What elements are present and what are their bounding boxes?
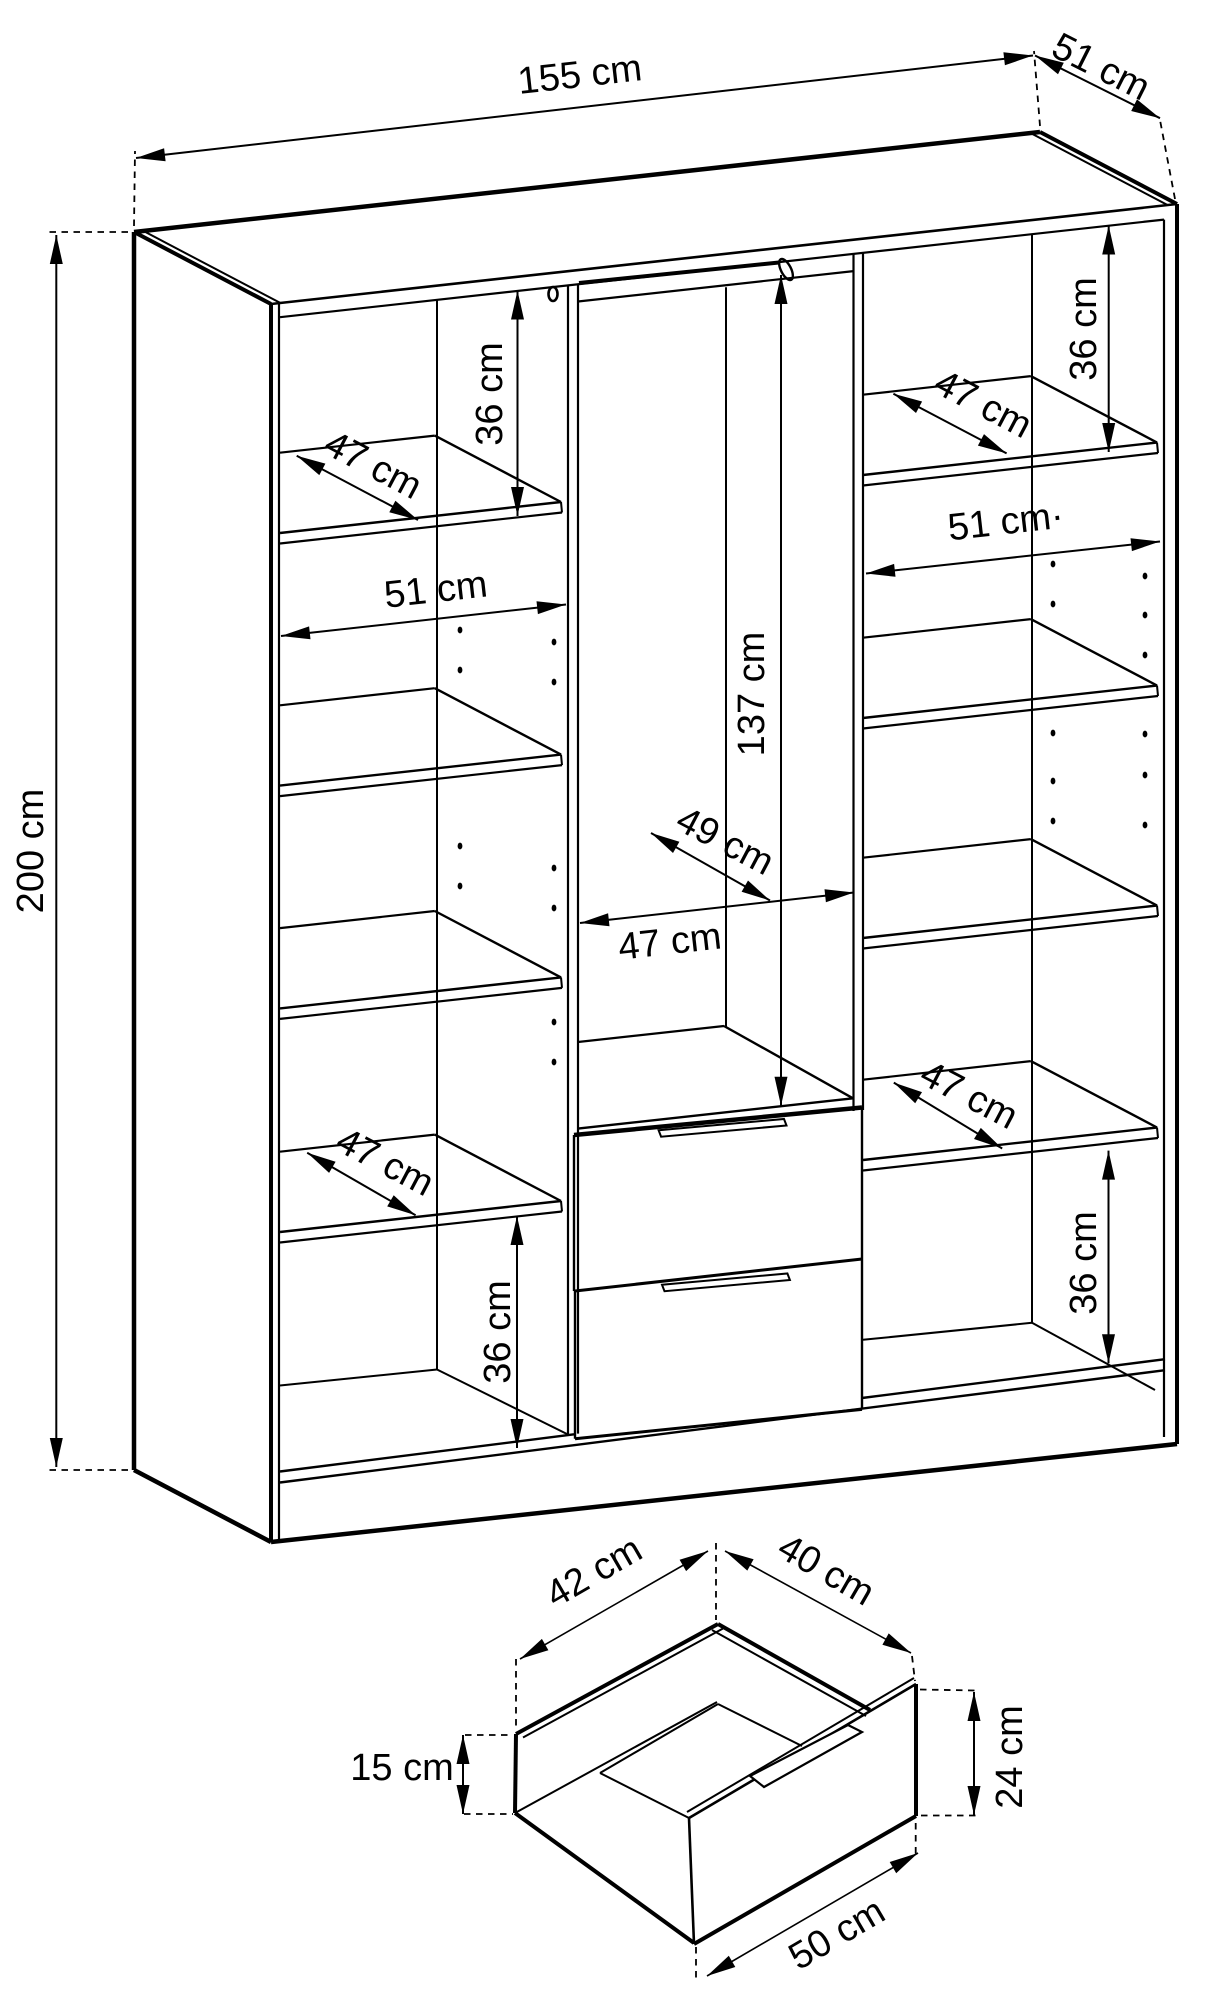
svg-text:36 cm: 36 cm (469, 342, 511, 445)
svg-text:36 cm: 36 cm (477, 1280, 519, 1383)
svg-text:15 cm: 15 cm (350, 1747, 453, 1789)
svg-text:200 cm: 200 cm (10, 789, 52, 914)
svg-text:24 cm: 24 cm (989, 1705, 1031, 1808)
svg-text:137 cm: 137 cm (731, 632, 773, 757)
svg-text:36 cm: 36 cm (1063, 1211, 1105, 1314)
svg-text:36 cm: 36 cm (1063, 277, 1105, 380)
